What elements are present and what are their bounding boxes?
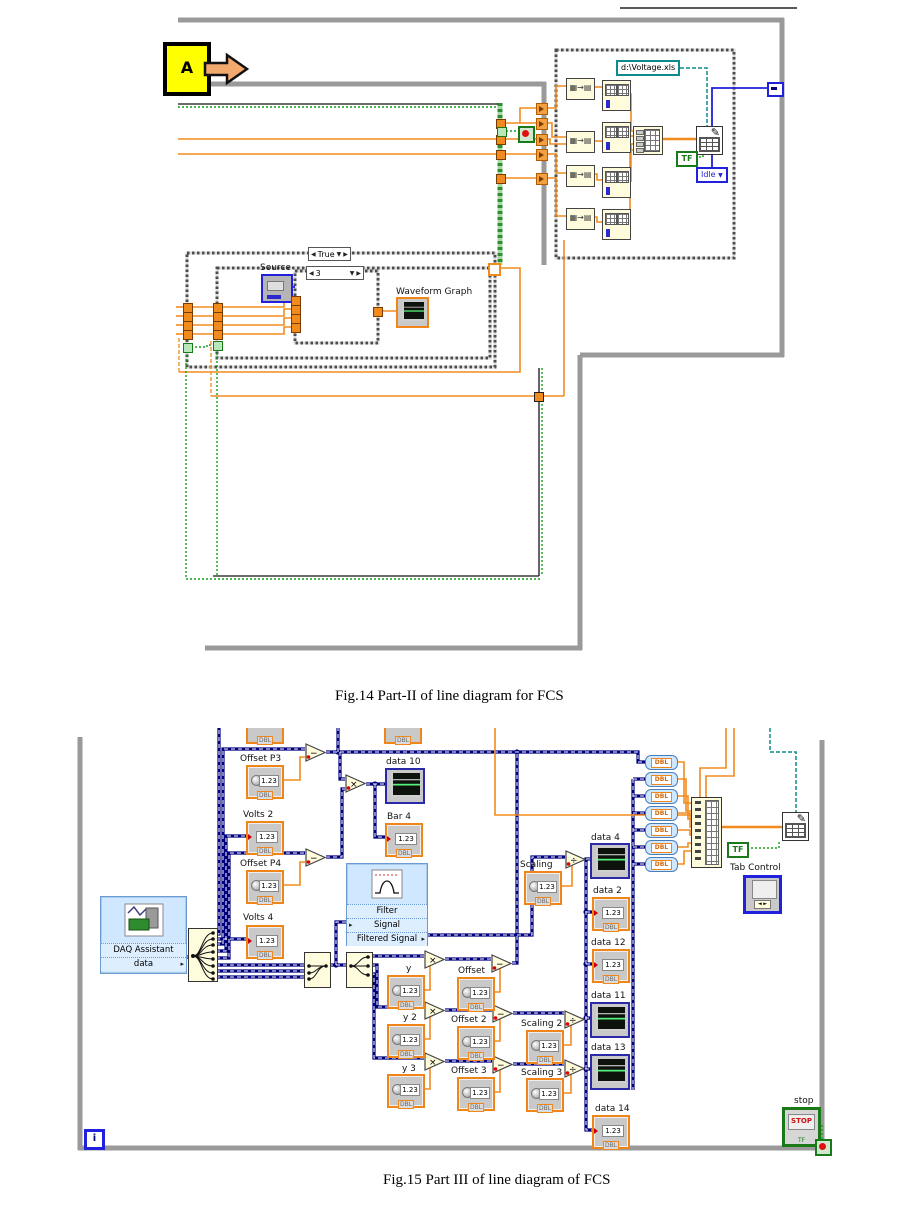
numeric-value: 1.23 bbox=[602, 1125, 624, 1137]
y-label: y bbox=[406, 964, 411, 974]
filter-icon bbox=[347, 864, 427, 904]
tunnel bbox=[291, 323, 301, 333]
inner-case-selector[interactable]: ◀ 3 ▼ ▶ bbox=[306, 266, 364, 280]
iteration-terminal: i bbox=[84, 1129, 105, 1150]
build-array-node[interactable]: ▦→▤ bbox=[566, 78, 595, 100]
volts-2-label: Volts 2 bbox=[243, 810, 273, 820]
dbl-tag: DBL bbox=[395, 736, 411, 745]
tab-arrows-icon[interactable]: ◄ ► bbox=[754, 900, 771, 909]
dbl-tag: DBL bbox=[398, 1100, 414, 1109]
numeric-value: 1.23 bbox=[395, 833, 417, 845]
operator-glyph: ÷ bbox=[570, 856, 578, 866]
operator-glyph: − bbox=[497, 1061, 505, 1071]
data-12-label: data 12 bbox=[591, 938, 626, 948]
tf-tag: TF bbox=[798, 1137, 805, 1144]
dbl-glyph: DBL bbox=[651, 775, 672, 785]
input-arrow-icon: ▸ bbox=[349, 919, 353, 932]
array-to-table-node[interactable] bbox=[602, 80, 631, 111]
output-arrow-icon: ▸ bbox=[180, 958, 184, 971]
boolean-constant[interactable]: TF bbox=[676, 151, 698, 167]
waveform-graph-label: Waveform Graph bbox=[396, 287, 472, 297]
volts-4-indicator: 1.23 DBL bbox=[246, 925, 284, 959]
enum-value[interactable]: Idle bbox=[701, 170, 716, 179]
numeric-value: 1.23 bbox=[256, 935, 278, 947]
data-2-indicator: 1.23 DBL bbox=[592, 897, 630, 931]
split-signals-node[interactable] bbox=[188, 928, 218, 982]
multiply-node[interactable]: × bbox=[424, 1052, 446, 1076]
dbl-glyph: DBL bbox=[651, 860, 672, 870]
convert-dynamic-data-node[interactable]: DBL bbox=[645, 823, 678, 838]
numeric-value[interactable]: 1.23 bbox=[539, 1088, 559, 1100]
numeric-value[interactable]: 1.23 bbox=[539, 1040, 559, 1052]
volts-4-label: Volts 4 bbox=[243, 913, 273, 923]
indexing-tunnel bbox=[536, 173, 548, 185]
cursor-mark bbox=[606, 229, 610, 237]
tunnel bbox=[373, 307, 383, 317]
build-array-node[interactable]: ▦→▤ bbox=[566, 165, 595, 187]
array-to-table-node[interactable] bbox=[602, 122, 631, 153]
convert-dynamic-data-node[interactable]: DBL bbox=[645, 755, 678, 770]
dbl-glyph: DBL bbox=[651, 758, 672, 768]
filter-title: Filter bbox=[347, 904, 427, 918]
dbl-glyph: DBL bbox=[651, 792, 672, 802]
multiply-node[interactable]: × bbox=[424, 1001, 446, 1025]
y-3-control[interactable]: 1.23 DBL bbox=[387, 1074, 425, 1108]
dbl-glyph: DBL bbox=[651, 826, 672, 836]
selector-down-icon[interactable]: ▼ bbox=[350, 268, 355, 279]
indexing-tunnel bbox=[536, 149, 548, 161]
dbl-tag: DBL bbox=[396, 849, 412, 858]
divide-node[interactable]: ÷ bbox=[564, 1059, 586, 1083]
dbl-tag: DBL bbox=[257, 791, 273, 800]
y-control[interactable]: 1.23 DBL bbox=[387, 975, 425, 1009]
numeric-value: 1.23 bbox=[602, 907, 624, 919]
table-grid-icon bbox=[605, 213, 617, 225]
filter-node[interactable]: Filter ▸ Signal Filtered Signal ▸ bbox=[346, 863, 428, 946]
numeric-value[interactable]: 1.23 bbox=[470, 1036, 490, 1048]
fan-curves bbox=[189, 929, 217, 981]
write-spreadsheet-file-node[interactable]: ✎ bbox=[696, 126, 723, 155]
offset-2-label: Offset 2 bbox=[451, 1015, 487, 1025]
subtract-node[interactable]: − bbox=[491, 954, 513, 978]
data-4-label: data 4 bbox=[591, 833, 620, 843]
data-4-graph[interactable] bbox=[590, 843, 630, 879]
table-grid-icon bbox=[617, 171, 629, 183]
numeric-value[interactable]: 1.23 bbox=[400, 1034, 420, 1046]
data-10-graph[interactable] bbox=[385, 768, 425, 804]
dbl-tag: DBL bbox=[257, 736, 273, 745]
build-array-glyph: ▦→▤ bbox=[570, 83, 592, 92]
flow-arrow-icon bbox=[203, 52, 251, 88]
plot-screen bbox=[596, 848, 625, 872]
numeric-value: 1.23 bbox=[256, 831, 278, 843]
operator-glyph: × bbox=[429, 1007, 437, 1017]
write-spreadsheet-file-node[interactable]: ✎ bbox=[782, 812, 809, 841]
source-control[interactable] bbox=[261, 274, 293, 303]
data-14-label: data 14 bbox=[595, 1104, 630, 1114]
subtract-node[interactable]: − bbox=[305, 848, 327, 872]
subtract-node[interactable]: − bbox=[492, 1004, 514, 1028]
stop-button-face[interactable]: STOP bbox=[788, 1114, 815, 1130]
cursor-mark bbox=[606, 187, 610, 195]
loop-tunnel bbox=[767, 82, 784, 97]
output-arrow-icon: ▸ bbox=[421, 933, 425, 946]
subtract-node[interactable]: − bbox=[305, 743, 327, 767]
data-12-indicator: 1.23 DBL bbox=[592, 949, 630, 983]
boolean-constant[interactable]: TF bbox=[727, 842, 749, 858]
scaling-3-control[interactable]: 1.23 DBL bbox=[526, 1078, 564, 1112]
tunnel bbox=[213, 330, 223, 340]
dbl-glyph: DBL bbox=[651, 809, 672, 819]
table-grid-icon bbox=[605, 126, 617, 138]
numeric-value[interactable]: 1.23 bbox=[470, 1087, 490, 1099]
table-grid-icon bbox=[617, 84, 629, 96]
loop-condition-terminal[interactable] bbox=[815, 1139, 832, 1156]
offset-p3-label: Offset P3 bbox=[240, 754, 281, 764]
selector-left-icon[interactable]: ◀ bbox=[309, 268, 314, 279]
numeric-value[interactable]: 1.23 bbox=[537, 881, 557, 893]
scaling-control[interactable]: 1.23 DBL bbox=[524, 871, 562, 905]
partial-control[interactable]: DBL bbox=[384, 728, 422, 744]
source-label: Source bbox=[260, 263, 291, 273]
type-band bbox=[267, 295, 281, 299]
convert-dynamic-data-node[interactable]: DBL bbox=[645, 789, 678, 804]
multiply-node[interactable]: × bbox=[345, 774, 367, 798]
state-enum-constant[interactable]: Idle ▼ bbox=[696, 167, 728, 183]
operator-glyph: × bbox=[350, 780, 358, 790]
data-11-graph[interactable] bbox=[590, 1002, 630, 1038]
tab-page-icon bbox=[752, 880, 777, 899]
numeric-value[interactable]: 1.23 bbox=[400, 1084, 420, 1096]
table-grid-icon bbox=[605, 84, 617, 96]
spreadsheet-grid-icon bbox=[785, 823, 806, 838]
data-13-graph[interactable] bbox=[590, 1054, 630, 1090]
waveform-graph-indicator[interactable] bbox=[396, 297, 429, 328]
dbl-tag: DBL bbox=[535, 897, 551, 906]
daq-output-label[interactable]: data bbox=[134, 959, 153, 969]
tab-control-terminal[interactable]: ◄ ► bbox=[743, 875, 782, 914]
build-array-glyph: ▦→▤ bbox=[570, 170, 592, 179]
array-to-table-node[interactable] bbox=[602, 209, 631, 240]
dbl-tag: DBL bbox=[468, 1103, 484, 1112]
dbl-tag: DBL bbox=[398, 1050, 414, 1059]
dbl-tag: DBL bbox=[603, 923, 619, 932]
offset-p3-control[interactable]: 1.23 DBL bbox=[246, 765, 284, 799]
plot-screen bbox=[596, 1059, 625, 1083]
scaling-2-control[interactable]: 1.23 DBL bbox=[526, 1030, 564, 1064]
filter-input-signal[interactable]: ▸ Signal bbox=[347, 918, 427, 932]
operator-glyph: ÷ bbox=[569, 1065, 577, 1075]
row-port bbox=[636, 142, 644, 147]
boolean-tunnel bbox=[497, 127, 507, 137]
selector-left-icon[interactable]: ◀ bbox=[311, 249, 316, 260]
operator-glyph: − bbox=[310, 749, 318, 759]
filter-output-filtered-signal[interactable]: Filtered Signal ▸ bbox=[347, 932, 427, 946]
dbl-tag: DBL bbox=[603, 1141, 619, 1150]
offset-control[interactable]: 1.23 DBL bbox=[457, 977, 495, 1011]
filter-input-label[interactable]: Signal bbox=[374, 920, 400, 930]
loop-condition-led[interactable] bbox=[518, 126, 535, 143]
merge-signals-node[interactable] bbox=[304, 952, 331, 988]
tab-control-label: Tab Control bbox=[730, 863, 781, 873]
build-array-node[interactable]: ▦→▤ bbox=[566, 131, 595, 153]
bar-4-indicator: 1.23 DBL bbox=[385, 823, 423, 857]
plot-screen bbox=[402, 302, 424, 321]
row-port bbox=[636, 148, 644, 153]
operator-glyph: × bbox=[429, 956, 437, 966]
dropdown-icon[interactable]: ▼ bbox=[718, 172, 723, 179]
case-selector-value[interactable]: True bbox=[318, 249, 335, 260]
offset-p4-label: Offset P4 bbox=[240, 859, 281, 869]
y-2-label: y 2 bbox=[403, 1013, 417, 1023]
daq-output-data[interactable]: data ▸ bbox=[101, 957, 186, 971]
value-window bbox=[267, 281, 284, 291]
numeric-value: 1.23 bbox=[602, 959, 624, 971]
offset-2-control[interactable]: 1.23 DBL bbox=[457, 1026, 495, 1060]
scaling-3-label: Scaling 3 bbox=[521, 1068, 562, 1078]
operator-glyph: − bbox=[310, 854, 318, 864]
operator-glyph: × bbox=[429, 1058, 437, 1068]
multiply-node[interactable]: × bbox=[424, 950, 446, 974]
data-13-label: data 13 bbox=[591, 1043, 626, 1053]
daq-title: DAQ Assistant bbox=[101, 943, 186, 957]
spreadsheet-grid-icon bbox=[699, 137, 720, 152]
fig14-wires bbox=[176, 68, 767, 579]
boolean-tunnel bbox=[213, 341, 223, 351]
build-array-glyph: ▦→▤ bbox=[570, 136, 592, 145]
dbl-tag: DBL bbox=[468, 1052, 484, 1061]
cursor-mark bbox=[606, 100, 610, 108]
wire-junction bbox=[534, 392, 544, 402]
table-grid-icon bbox=[617, 213, 629, 225]
numeric-value[interactable]: 1.23 bbox=[400, 985, 420, 997]
y-2-control[interactable]: 1.23 DBL bbox=[387, 1024, 425, 1058]
build-array-node[interactable] bbox=[691, 797, 722, 868]
filter-output-label[interactable]: Filtered Signal bbox=[357, 934, 417, 944]
dbl-tag: DBL bbox=[537, 1056, 553, 1065]
daq-icon bbox=[101, 897, 186, 943]
indexing-tunnel bbox=[536, 134, 548, 146]
data-14-indicator: 1.23 DBL bbox=[592, 1115, 630, 1149]
convert-dynamic-data-node[interactable]: DBL bbox=[645, 857, 678, 872]
table-grid-icon bbox=[617, 126, 629, 138]
row-port bbox=[636, 130, 644, 135]
boolean-tunnel bbox=[183, 343, 193, 353]
plot-screen bbox=[596, 1007, 625, 1031]
bar-4-label: Bar 4 bbox=[387, 812, 411, 822]
array-grid-icon bbox=[705, 800, 719, 865]
convert-dynamic-data-node[interactable]: DBL bbox=[645, 772, 678, 787]
case-selector-value[interactable]: 3 bbox=[316, 268, 348, 279]
fan-curves bbox=[347, 953, 372, 987]
daq-assistant-node[interactable]: DAQ Assistant data ▸ bbox=[100, 896, 187, 974]
dbl-tag: DBL bbox=[257, 896, 273, 905]
stop-label: stop bbox=[794, 1096, 813, 1106]
tunnel bbox=[496, 174, 506, 184]
tunnel bbox=[488, 263, 501, 276]
dbl-tag: DBL bbox=[257, 847, 273, 856]
input-ports bbox=[695, 801, 701, 864]
data-11-label: data 11 bbox=[591, 991, 626, 1001]
fig14-case-borders bbox=[187, 50, 734, 367]
offset-3-control[interactable]: 1.23 DBL bbox=[457, 1077, 495, 1111]
table-grid-icon bbox=[605, 171, 617, 183]
scaling-2-label: Scaling 2 bbox=[521, 1019, 562, 1029]
subtract-node[interactable]: − bbox=[492, 1055, 514, 1079]
selector-down-icon[interactable]: ▼ bbox=[337, 249, 342, 260]
array-grid-icon bbox=[644, 129, 660, 152]
row-port bbox=[636, 136, 644, 141]
dbl-tag: DBL bbox=[257, 951, 273, 960]
divide-node[interactable]: ÷ bbox=[565, 850, 587, 874]
fig15-caption: Fig.15 Part III of line diagram of FCS bbox=[383, 1172, 610, 1189]
data-10-label: data 10 bbox=[386, 757, 421, 767]
indexing-tunnel bbox=[536, 103, 548, 115]
convert-dynamic-data-node[interactable]: DBL bbox=[645, 840, 678, 855]
cursor-mark bbox=[606, 142, 610, 150]
numeric-value[interactable]: 1.23 bbox=[259, 880, 279, 892]
data-2-label: data 2 bbox=[593, 886, 622, 896]
split-signals-node[interactable] bbox=[346, 952, 373, 988]
dbl-tag: DBL bbox=[398, 1001, 414, 1010]
operator-glyph: − bbox=[496, 960, 504, 970]
selector-right-icon[interactable]: ▶ bbox=[356, 268, 361, 279]
convert-dynamic-data-node[interactable]: DBL bbox=[645, 806, 678, 821]
divide-node[interactable]: ÷ bbox=[564, 1010, 586, 1034]
numeric-value[interactable]: 1.23 bbox=[259, 775, 279, 787]
offset-label: Offset bbox=[458, 966, 485, 976]
fan-curves bbox=[305, 953, 330, 987]
partial-control[interactable]: DBL bbox=[246, 728, 284, 744]
selector-right-icon[interactable]: ▶ bbox=[343, 249, 348, 260]
dbl-tag: DBL bbox=[603, 975, 619, 984]
build-array-glyph: ▦→▤ bbox=[570, 213, 592, 222]
tunnel bbox=[496, 150, 506, 160]
y-3-label: y 3 bbox=[402, 1064, 416, 1074]
tunnel bbox=[183, 330, 193, 340]
array-to-table-node[interactable] bbox=[602, 167, 631, 198]
page: A ▦→▤ ▦→▤ ▦→▤ ▦→▤ ✎ d:\Voltage.xls TF Id… bbox=[0, 0, 914, 1208]
fig14-caption: Fig.14 Part-II of line diagram for FCS bbox=[335, 688, 564, 705]
volts-2-indicator: 1.23 DBL bbox=[246, 821, 284, 855]
indexing-tunnel bbox=[536, 118, 548, 130]
dbl-glyph: DBL bbox=[651, 843, 672, 853]
operator-glyph: ÷ bbox=[569, 1016, 577, 1026]
file-path-constant[interactable]: d:\Voltage.xls bbox=[616, 60, 680, 76]
build-array-node[interactable]: ▦→▤ bbox=[566, 208, 595, 230]
plot-screen bbox=[391, 773, 420, 797]
merge-arrays-node[interactable] bbox=[633, 126, 663, 155]
case-selector[interactable]: ◀ True ▼ ▶ bbox=[308, 247, 351, 261]
scaling-label: Scaling bbox=[520, 860, 553, 870]
dbl-tag: DBL bbox=[468, 1003, 484, 1012]
numeric-value[interactable]: 1.23 bbox=[470, 987, 490, 999]
offset-p4-control[interactable]: 1.23 DBL bbox=[246, 870, 284, 904]
dbl-tag: DBL bbox=[537, 1104, 553, 1113]
offset-3-label: Offset 3 bbox=[451, 1066, 487, 1076]
operator-glyph: − bbox=[497, 1010, 505, 1020]
